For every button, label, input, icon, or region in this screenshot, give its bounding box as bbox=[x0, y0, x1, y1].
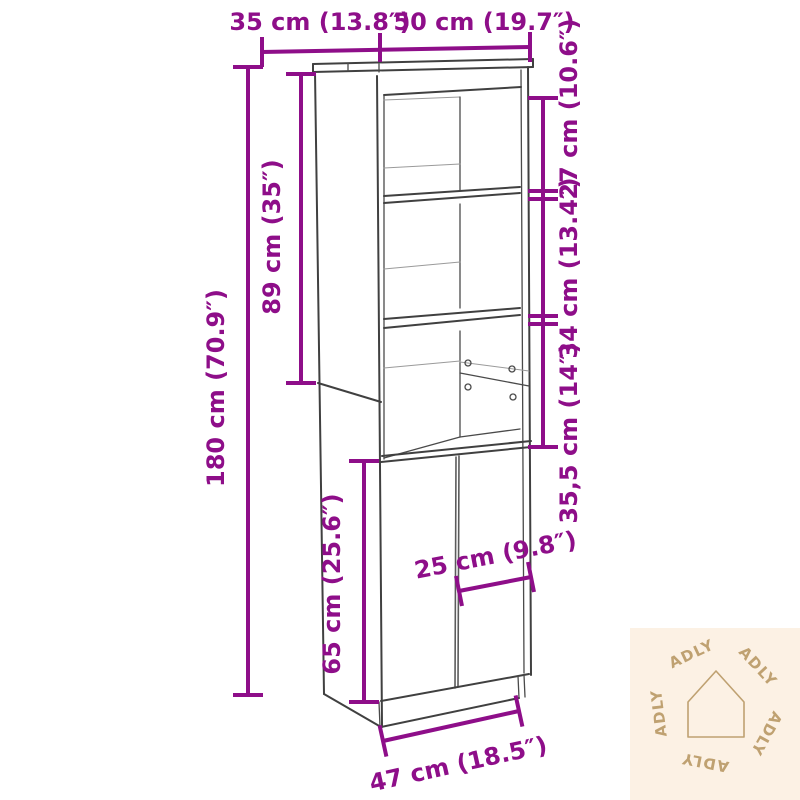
shelf-1 bbox=[384, 187, 520, 203]
dim-label-right-middle: 34 cm (13.4″) bbox=[555, 177, 583, 358]
dimension-annotations: 35 cm (13.8″) 50 cm (19.7″) 27 cm (10.6″… bbox=[202, 8, 583, 797]
right-dimension-line bbox=[528, 98, 558, 447]
upper-height-dimension-line bbox=[286, 74, 316, 383]
diagram-canvas: ADLY ADLY ADLY ADLY ADLY bbox=[0, 0, 800, 800]
dim-label-top-width: 50 cm (19.7″) bbox=[393, 8, 574, 36]
cabinet-top-panel bbox=[313, 59, 533, 72]
shelf-2 bbox=[384, 308, 520, 328]
lower-niche bbox=[384, 331, 529, 458]
dim-label-total-height: 180 cm (70.9″) bbox=[202, 289, 230, 487]
dim-label-bottom-width: 47 cm (18.5″) bbox=[367, 731, 550, 798]
upper-compartment bbox=[384, 97, 460, 190]
dim-label-right-lower: 35,5 cm (14″) bbox=[555, 342, 583, 523]
dim-label-upper-height: 89 cm (35″) bbox=[258, 159, 286, 314]
dim-label-right-upper: 27 cm (10.6″) bbox=[555, 18, 583, 199]
dim-label-top-depth: 35 cm (13.8″) bbox=[229, 8, 410, 36]
door-height-dimension-line bbox=[349, 461, 379, 702]
dim-label-door-height: 65 cm (25.6″) bbox=[318, 493, 346, 674]
dim-label-inner-width: 25 cm (9.8″) bbox=[412, 526, 579, 585]
cabinet-drawing bbox=[313, 59, 533, 727]
doors-and-plinth bbox=[381, 456, 529, 727]
brand-watermark: ADLY ADLY ADLY ADLY ADLY bbox=[630, 628, 800, 800]
cabinet-top-rail bbox=[384, 87, 521, 459]
middle-compartment bbox=[384, 204, 460, 308]
furniture-dimension-diagram: ADLY ADLY ADLY ADLY ADLY bbox=[0, 0, 800, 800]
